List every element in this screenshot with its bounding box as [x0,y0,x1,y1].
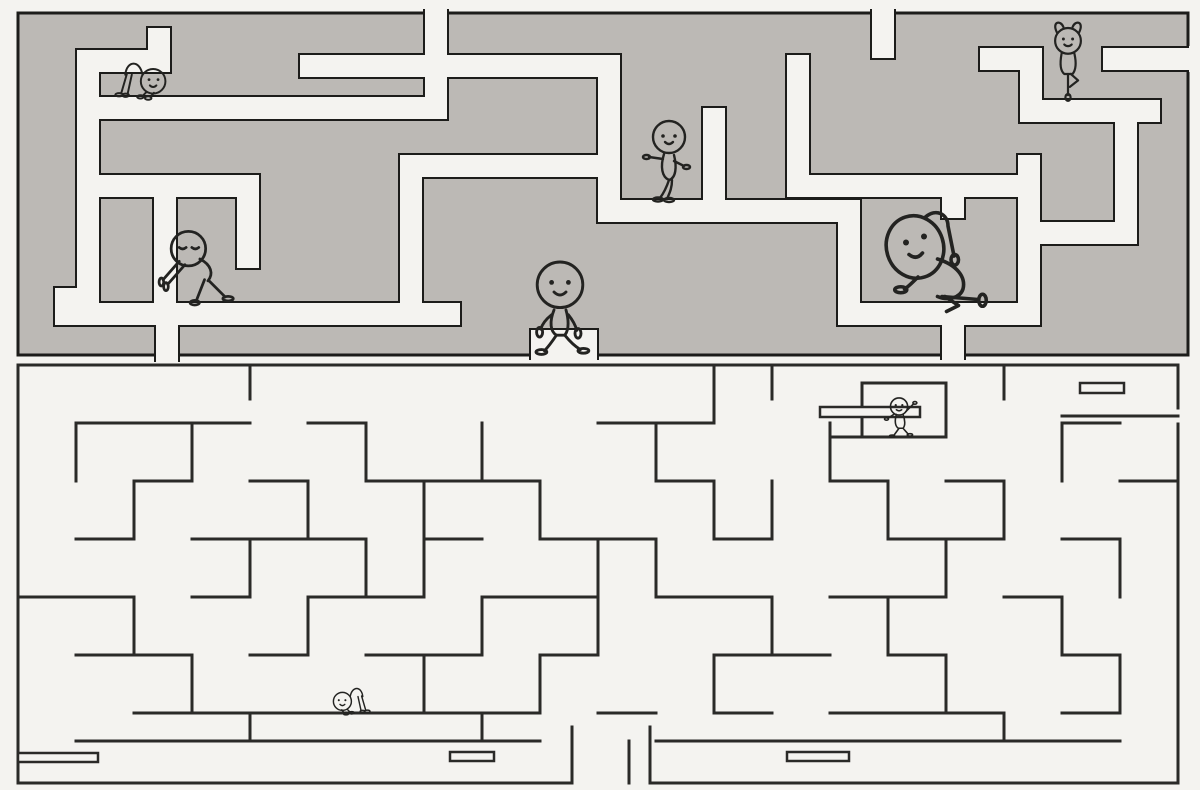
crawl-pose-figure [333,689,370,715]
maze-corridor-fill [787,55,809,197]
maze-corridor-fill [703,108,725,200]
maze-opening [425,7,447,14]
maze-corridor-fill [1103,48,1190,70]
maze-wall-bar [787,752,849,761]
maze-opening [942,355,964,364]
maze-wall-bar [450,752,494,761]
maze-corridor-fill [1018,155,1040,325]
maze-opening [156,355,178,364]
maze-corridor-fill [598,200,860,222]
character-crawler-bottom [333,689,370,715]
maze-corridor-fill [1040,100,1160,122]
maze-corridor-fill [55,303,460,325]
maze-corridor-fill [400,177,422,325]
maze-corridor-fill [300,55,620,77]
maze-corridor-fill [156,310,178,360]
maze-corridor-fill [806,175,1040,197]
top-maze-gray-walls [18,7,1200,364]
maze-corridor-fill [77,97,447,119]
maze-corridor-fill [838,303,1040,325]
maze-scene [0,0,1200,790]
maze-corridor-fill [237,197,259,268]
maze-corridor-fill [1115,122,1137,244]
maze-corridor-fill [77,175,259,197]
maze-corridor-fill [980,48,1042,70]
maze-corridor-fill [872,11,894,58]
maze-corridor-fill [1040,222,1115,244]
maze-opening [1189,46,1200,72]
maze-wall-bar [1080,383,1124,393]
maze-corridor-fill [148,28,170,72]
maze-opening [872,7,894,14]
maze-corridor-fill [400,155,620,177]
bottom-maze-line-walls [18,365,1178,783]
maze-corridor-fill [154,197,176,325]
maze-corridor-fill [942,325,964,358]
maze-corridor-fill [942,180,964,218]
maze-opening [531,355,597,364]
maze-wall-bar [18,753,98,762]
maze-illustration [0,0,1200,790]
maze-corridor-fill [77,97,99,310]
